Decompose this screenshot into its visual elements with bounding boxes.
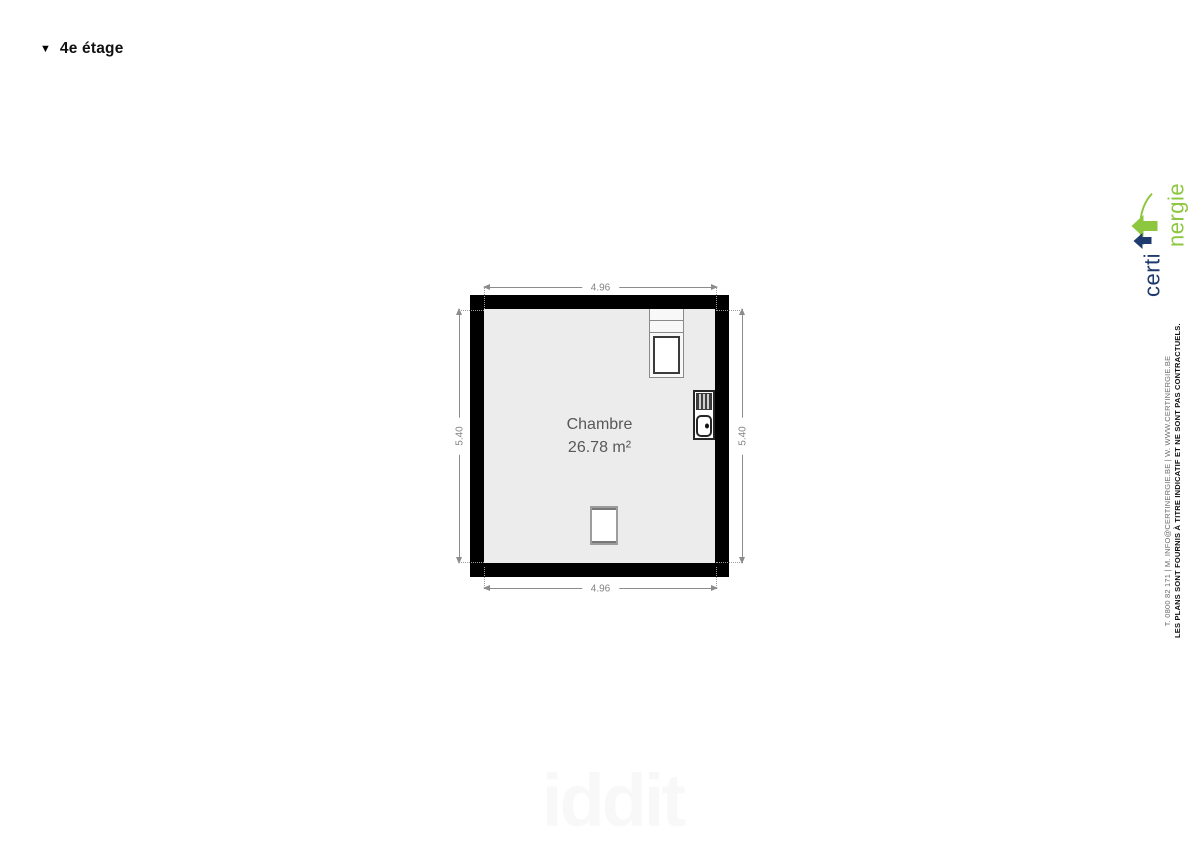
dimension-line-bottom: 4.96 xyxy=(484,588,717,589)
dimension-value-left: 5.40 xyxy=(454,417,465,454)
extension-line xyxy=(716,567,717,588)
extension-line xyxy=(716,562,742,563)
skylight xyxy=(590,506,618,545)
floorplan: Chambre 26.78 m² xyxy=(470,295,729,577)
extension-line xyxy=(716,288,717,309)
extension-line xyxy=(484,288,485,309)
floor-section-header[interactable]: ▼ 4e étage xyxy=(40,40,124,58)
collapse-triangle-icon: ▼ xyxy=(40,44,51,55)
room-label: Chambre 26.78 m² xyxy=(484,413,715,459)
contact-line: T. 0800 82 171 | M. INFO@CERTINERGIE.BE … xyxy=(1163,344,1173,638)
kitchen-unit-shelf-line xyxy=(650,332,683,333)
logo-arrows-icon xyxy=(1125,205,1165,251)
legal-strip: T. 0800 82 171 | M. INFO@CERTINERGIE.BE … xyxy=(1161,344,1185,638)
dimension-line-left: 5.40 xyxy=(459,309,460,563)
extension-line xyxy=(716,310,742,311)
dimension-value-bottom: 4.96 xyxy=(582,583,619,594)
room-area: 26.78 m² xyxy=(484,436,715,459)
appliance xyxy=(653,336,680,374)
dimension-value-right: 5.40 xyxy=(737,417,748,454)
dimension-line-top: 4.96 xyxy=(484,287,717,288)
logo-text-certi: certi xyxy=(1139,253,1165,297)
extension-line xyxy=(459,310,484,311)
kitchen-unit-shelf-line xyxy=(650,320,683,321)
certinergie-logo: certi nergie xyxy=(1125,183,1192,297)
watermark: iddit xyxy=(505,758,720,843)
dimension-line-right: 5.40 xyxy=(742,309,743,563)
disclaimer-line: LES PLANS SONT FOURNIS À TITRE INDICATIF… xyxy=(1173,344,1183,638)
kitchen-unit xyxy=(649,309,684,378)
extension-line xyxy=(459,562,484,563)
extension-line xyxy=(484,567,485,588)
floor-title: 4e étage xyxy=(60,40,124,58)
drainer-stripes xyxy=(696,393,712,410)
dimension-value-top: 4.96 xyxy=(582,282,619,293)
room-name: Chambre xyxy=(484,413,715,436)
